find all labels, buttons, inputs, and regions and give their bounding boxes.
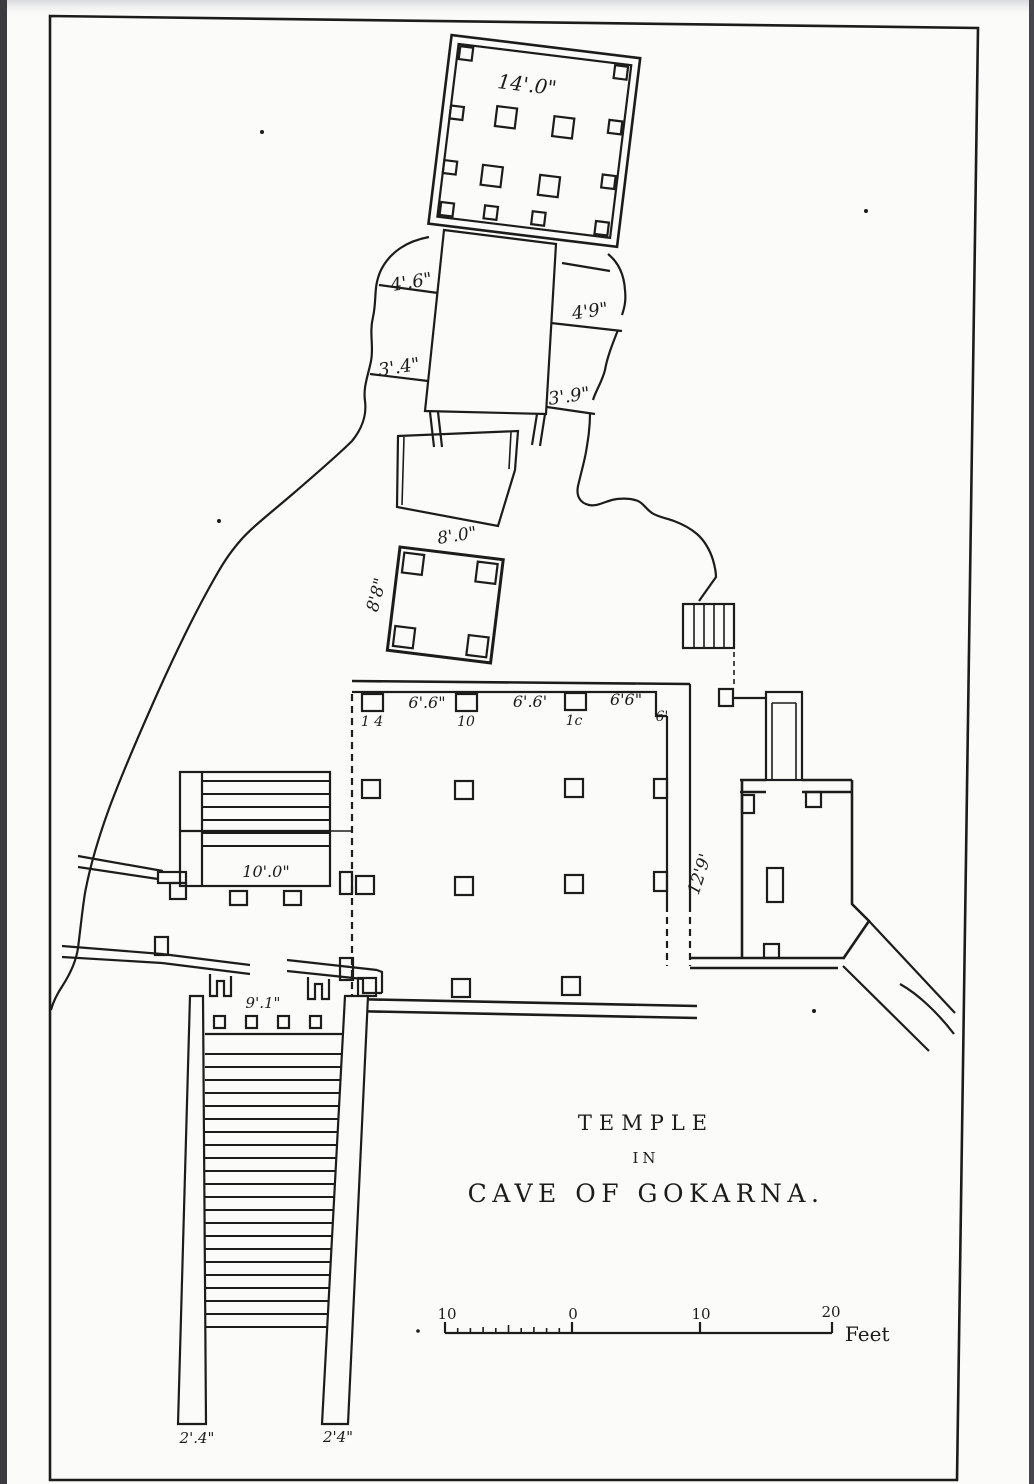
plate-title-line3: CAVE OF GOKARNA. — [468, 1179, 825, 1208]
dim-label-passage-right: 2'4" — [322, 1428, 353, 1446]
plate-title-line2: IN — [632, 1149, 659, 1167]
scan-top-shadow — [0, 0, 1034, 18]
plate-title-line1: TEMPLE — [578, 1111, 714, 1135]
entrance-stair-treads — [205, 1042, 344, 1333]
west-stair-treads — [202, 772, 330, 857]
scanned-plan-plate: 14'.0" 4'.6" 4'9" 3'.4" 3'.9" 8'.0" 8'8" — [0, 0, 1034, 1484]
paper-background — [0, 0, 1034, 1484]
dim-label-pier2: 10 — [457, 714, 475, 730]
scale-label-0: 0 — [568, 1305, 578, 1323]
dim-label-pier3: 1c — [566, 713, 583, 729]
scan-right-edge — [1029, 0, 1034, 1484]
dim-label-bay1: 6'.6" — [408, 693, 445, 712]
scale-label-20: 20 — [821, 1303, 840, 1321]
scale-label-10R: 10 — [691, 1305, 710, 1323]
dim-label-pier1: 1 4 — [361, 714, 383, 730]
dim-label-entrance: 9'.1" — [246, 994, 281, 1012]
scan-left-edge — [0, 0, 7, 1484]
dim-label-bay3: 6'6" — [610, 690, 642, 709]
dim-label-pier4: 6' — [656, 709, 669, 725]
dim-label-passage-left: 2'.4" — [179, 1429, 215, 1447]
temple-plan-drawing: 14'.0" 4'.6" 4'9" 3'.4" 3'.9" 8'.0" 8'8" — [0, 0, 1034, 1484]
dim-label-bay2: 6'.6' — [513, 692, 547, 711]
scale-unit-label: Feet — [845, 1322, 890, 1346]
dim-label-west-stair: 10'.0" — [242, 862, 289, 881]
scale-label-10L: 10 — [437, 1305, 456, 1323]
